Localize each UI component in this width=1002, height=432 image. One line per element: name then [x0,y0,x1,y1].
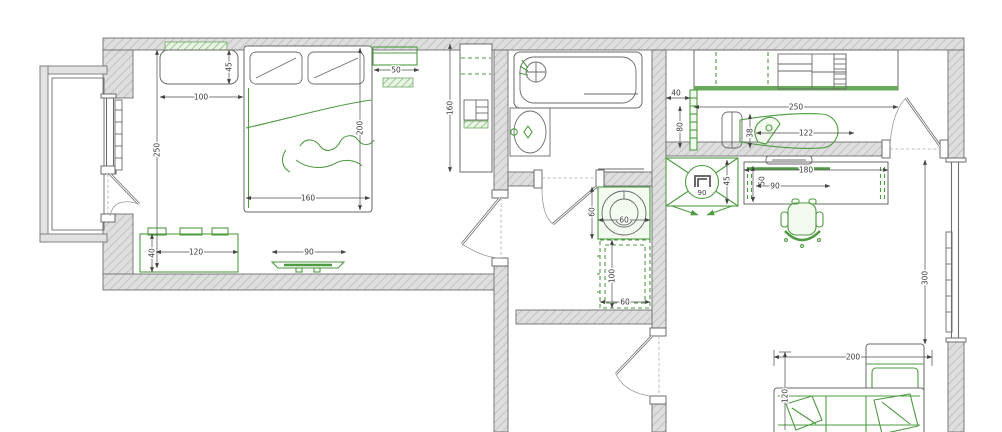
balcony-wall-bottom [40,234,107,242]
towel-rail [598,169,644,172]
dim-board-length: 122 [799,129,814,138]
radiator-left [115,100,122,170]
wall-hall-right-upper [652,50,666,328]
dim-sofa-width: 200 [846,353,861,362]
dim-bed-width: 160 [301,194,316,203]
dressing-dimensions: 40 80 250 122 38 [666,88,898,148]
living-room-window [946,158,966,342]
dim-cabinet-length: 100 [608,269,617,284]
bedroom-window [101,94,116,174]
floor-plan: 100 45 250 200 160 50 160 120 40 90 [0,0,1002,432]
wall-right-lower [948,340,964,432]
bedroom: 100 45 250 200 160 50 160 120 40 90 [115,44,492,272]
wall-bath-bottom-right [604,172,652,186]
dim-tv-width: 90 [304,248,314,257]
washing-machine [598,187,650,239]
wall-dressing-bottom [666,142,882,156]
balcony-wall-top [40,66,107,74]
living-room: 90 [666,156,966,432]
wall-right-upper [948,50,964,162]
wall-vent-strip [165,42,227,50]
clothes-rack [690,90,697,150]
wall-center-lower [494,266,508,432]
dim-bench-width: 100 [194,93,209,102]
wall-left-upper-block [103,50,133,98]
balcony-wall-left [40,66,48,242]
hall-living-door [616,328,666,404]
dim-nightstand-width: 50 [391,66,401,75]
dim-desk-clearance: 90 [770,182,780,191]
dim-corner-depth: 45 [723,176,732,186]
dim-dresser-width: 120 [189,248,204,257]
dim-bed-length: 200 [356,121,365,136]
dim-washer-width: 60 [619,216,629,225]
corner-unit-label: 90 [698,189,707,197]
bathroom [510,52,644,172]
wall-top [103,38,964,50]
dressing-room: 40 80 250 122 38 [666,50,898,150]
dim-washer-depth: 60 [588,207,597,217]
dim-bench-depth: 45 [225,62,234,72]
dim-rack-length: 80 [676,122,685,132]
wardrobe [694,50,898,91]
dim-desk-width: 180 [799,166,814,175]
dim-rack-depth: 40 [671,88,681,97]
dim-room-length: 250 [153,143,162,158]
sink [510,108,550,156]
wall-center-upper [494,50,508,190]
dim-board-width: 38 [746,128,755,138]
floor-plan-canvas: 100 45 250 200 160 50 160 120 40 90 [0,0,1002,432]
dim-sofa-depth: 120 [781,389,790,404]
tv [272,262,344,272]
hallway: 60 60 100 60 [588,187,651,308]
wall-bath-bottom-left [508,172,534,186]
wall-left-lower-block [103,214,133,276]
wall-bedroom-bottom [103,274,508,290]
balcony [40,66,107,242]
office-chair [781,199,823,247]
nightstand-shelf [383,78,413,87]
dim-window-width: 300 [921,271,930,286]
dim-wardrobe-width: 250 [789,103,804,112]
dim-wardrobe-height: 160 [446,101,455,116]
wall-hall-right-lower [652,404,666,432]
dim-dresser-depth: 40 [148,248,157,258]
wall-hall-stub [516,310,652,324]
bathtub [514,52,642,108]
dim-desk-depth: 50 [758,176,767,186]
bed [244,46,374,212]
wardrobe-column [460,44,492,172]
bedroom-door [462,190,508,266]
balcony-railing [52,78,104,230]
dim-cabinet-width: 60 [620,298,630,307]
